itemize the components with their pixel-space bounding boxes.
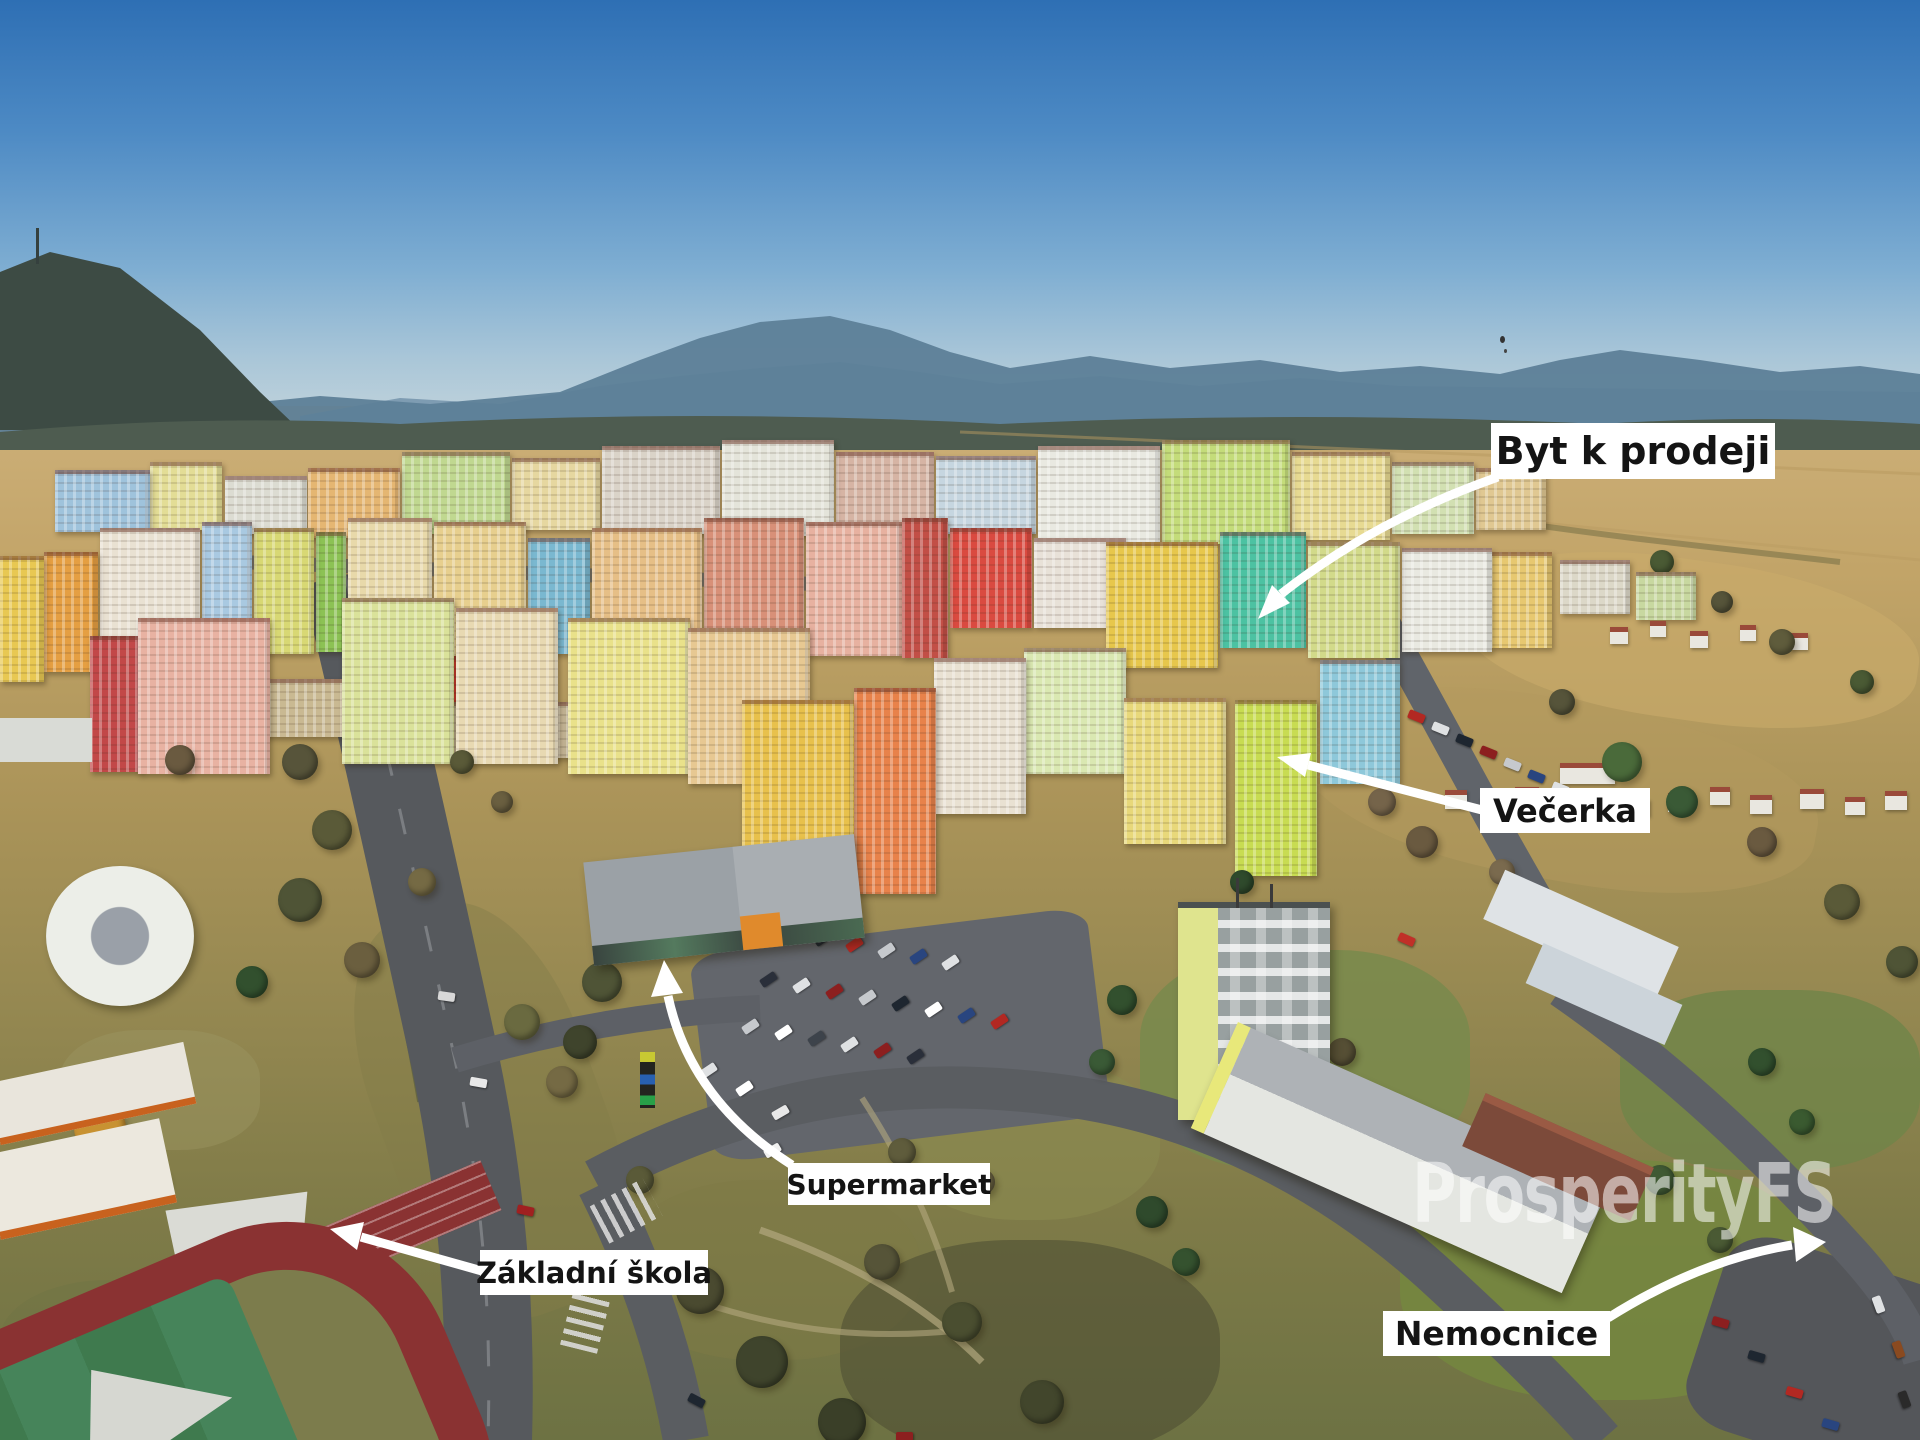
apartment-building [138,618,270,774]
tree [864,1244,900,1280]
apartment-building [456,608,558,764]
label-nemocnice: Nemocnice [1383,1311,1610,1356]
tree [942,1302,982,1342]
tree [1650,550,1674,574]
apartment-building [1038,446,1160,546]
tree [1172,1248,1200,1276]
apartment-building [854,688,936,894]
apartment-building [1162,440,1290,544]
tree [888,1138,916,1166]
house [1750,795,1772,814]
rooftop-antenna [1270,884,1273,908]
apartment-building [90,636,142,772]
apartment-building [1124,698,1226,844]
tree [491,791,513,813]
tree [236,966,268,998]
tree [1406,826,1438,858]
apartment-building [1220,532,1306,648]
apartment-building [1560,560,1630,614]
apartment-building [1024,648,1126,774]
house [1650,621,1666,637]
house [1885,791,1907,810]
supermarket-entrance [740,912,783,950]
tree [1107,985,1137,1015]
tree [1136,1196,1168,1228]
tree [504,1004,540,1040]
house [1610,627,1628,644]
apartment-building [342,598,454,764]
tree [1020,1380,1064,1424]
house [1740,625,1756,641]
apartment-building [950,528,1032,628]
tree [1089,1049,1115,1075]
apartment-building [150,462,222,530]
tree [450,750,474,774]
apartment-building [1320,660,1400,784]
tree [1666,786,1698,818]
tree [546,1066,578,1098]
tree [1328,1038,1356,1066]
apartment-building [1292,452,1390,540]
apartment-building [1490,552,1552,648]
apartment-building [512,458,600,530]
tree [1748,1048,1776,1076]
label-zakladni-skola: Základní škola [480,1250,708,1295]
advertising-totem [640,1052,655,1108]
balloon-basket [1504,349,1507,353]
tree [312,810,352,850]
antenna-mast [36,228,39,264]
tree [1549,689,1575,715]
sky [0,0,1920,436]
tree [1769,629,1795,655]
hot-air-balloon [1500,336,1505,343]
tree [1747,827,1777,857]
tree [278,878,322,922]
apartment-building [936,456,1036,534]
label-supermarket: Supermarket [788,1163,990,1205]
apartment-building [806,522,902,656]
tree [1711,591,1733,613]
tree [1368,788,1396,816]
rooftop-antenna [1236,878,1239,908]
prosperityfs-watermark: ProsperityFS [1412,1150,1835,1240]
house [1800,789,1824,809]
apartment-building [1636,572,1696,620]
tree [736,1336,788,1388]
round-gym-building [46,866,194,1006]
tree [1824,884,1860,920]
apartment-building [1402,548,1492,652]
tree [408,868,436,896]
house [1845,797,1865,815]
tree [1230,870,1254,894]
house [1710,787,1730,805]
house [1445,790,1467,809]
tree [818,1398,866,1440]
apartment-building [934,658,1026,814]
apartment-building [55,470,150,532]
tree [582,962,622,1002]
tree [1602,742,1642,782]
apartment-building [602,446,720,534]
apartment-building [0,556,44,682]
aerial-photo: ProsperityFS Byt k prodeji Večerka Super… [0,0,1920,1440]
tree [165,745,195,775]
tree [282,744,318,780]
apartment-building [1235,700,1317,876]
apartment-building [1308,542,1400,658]
apartment-building [1392,462,1474,534]
small-white-building [0,718,92,762]
tree [1789,1109,1815,1135]
tree [1886,946,1918,978]
car [896,1432,913,1440]
label-byt-k-prodeji: Byt k prodeji [1491,423,1775,479]
tree [1850,670,1874,694]
tree [344,942,380,978]
tree [563,1025,597,1059]
apartment-building [902,518,948,658]
apartment-building [568,618,690,774]
label-vecerka: Večerka [1480,788,1650,833]
house [1690,631,1708,648]
